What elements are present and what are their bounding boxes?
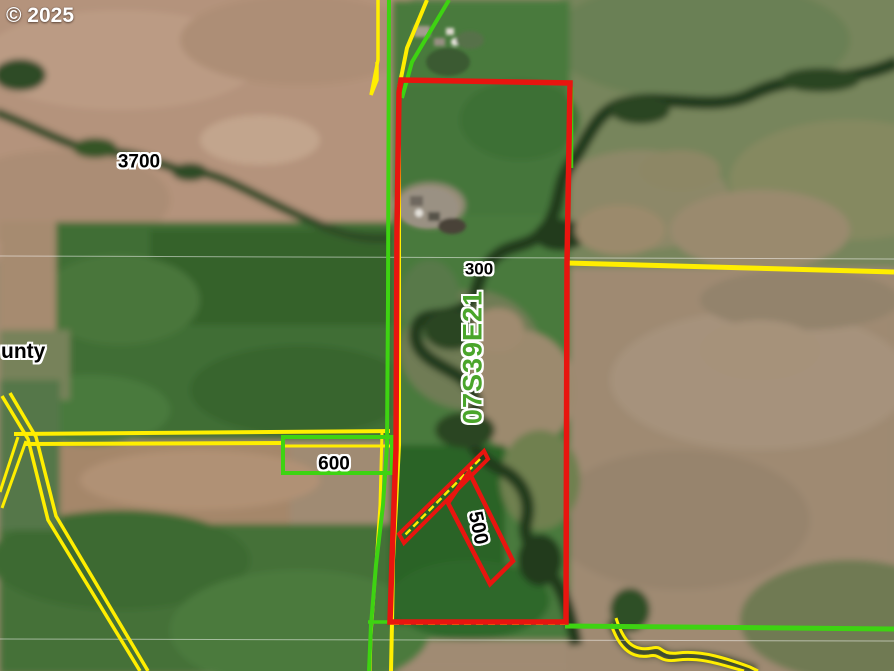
taxlot-label-300: 300 xyxy=(465,261,493,278)
aerial-parcel-map[interactable]: © 2025 3700 300 07S39E21 600 500 unty xyxy=(0,0,894,671)
copyright-watermark: © 2025 xyxy=(6,5,74,26)
township-section-label: 07S39E21 xyxy=(460,290,487,424)
taxlot-label-600: 600 xyxy=(318,455,350,474)
taxlot-label-3700: 3700 xyxy=(118,153,160,172)
county-label-clipped: unty xyxy=(1,341,45,362)
satellite-imagery xyxy=(0,0,894,671)
terrain-patches xyxy=(0,0,894,671)
